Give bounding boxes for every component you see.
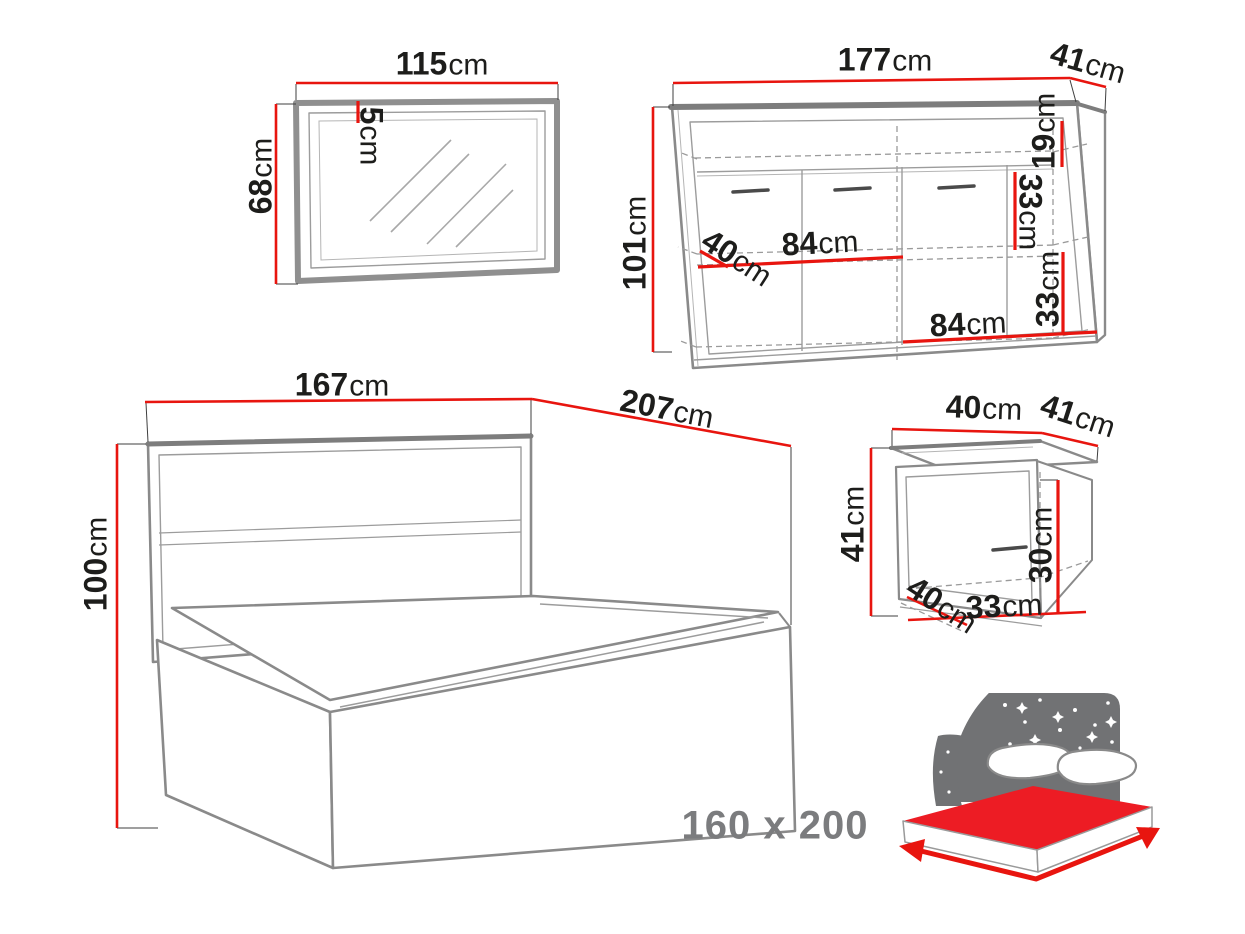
dim-label-nightstand-width: 40cm: [945, 390, 1023, 426]
dim-label-sideboard-bottom-section: 33cm: [1032, 251, 1065, 328]
bed-icon-pillow: [1058, 750, 1136, 784]
bed-icon: [899, 690, 1160, 879]
mattress-size-label: 160 x 200: [682, 804, 869, 849]
mirror-frame-outer: [296, 101, 557, 281]
dim-label-bed-height: 100cm: [80, 517, 113, 611]
dim-label-mirror-width: 115cm: [396, 48, 489, 81]
dim-label-mirror-height: 68cm: [245, 138, 278, 215]
bed-drawing: [117, 399, 795, 868]
dim-label-bed-width: 167cm: [295, 369, 389, 402]
dim-label-sideboard-left-compartment: 84cm: [781, 225, 859, 262]
dim-label-nightstand-interior-height: 30cm: [1025, 507, 1058, 584]
dim-label-sideboard-middle-section: 33cm: [1014, 174, 1047, 251]
dim-label-sideboard-right-compartment: 84cm: [929, 306, 1007, 343]
furniture-dimensions-diagram: 115cm 68cm 5cm 177cm 41cm 101cm 19cm 33c…: [0, 0, 1245, 934]
dim-label-nightstand-height: 41cm: [837, 486, 870, 563]
dim-label-sideboard-height: 101cm: [619, 196, 652, 290]
dim-label-mirror-frame: 5cm: [355, 107, 388, 166]
dim-label-sideboard-width: 177cm: [838, 44, 932, 77]
mirror-drawing: [276, 83, 558, 284]
sideboard-top-edge: [671, 103, 1077, 107]
dim-label-sideboard-top-section: 19cm: [1028, 93, 1061, 170]
